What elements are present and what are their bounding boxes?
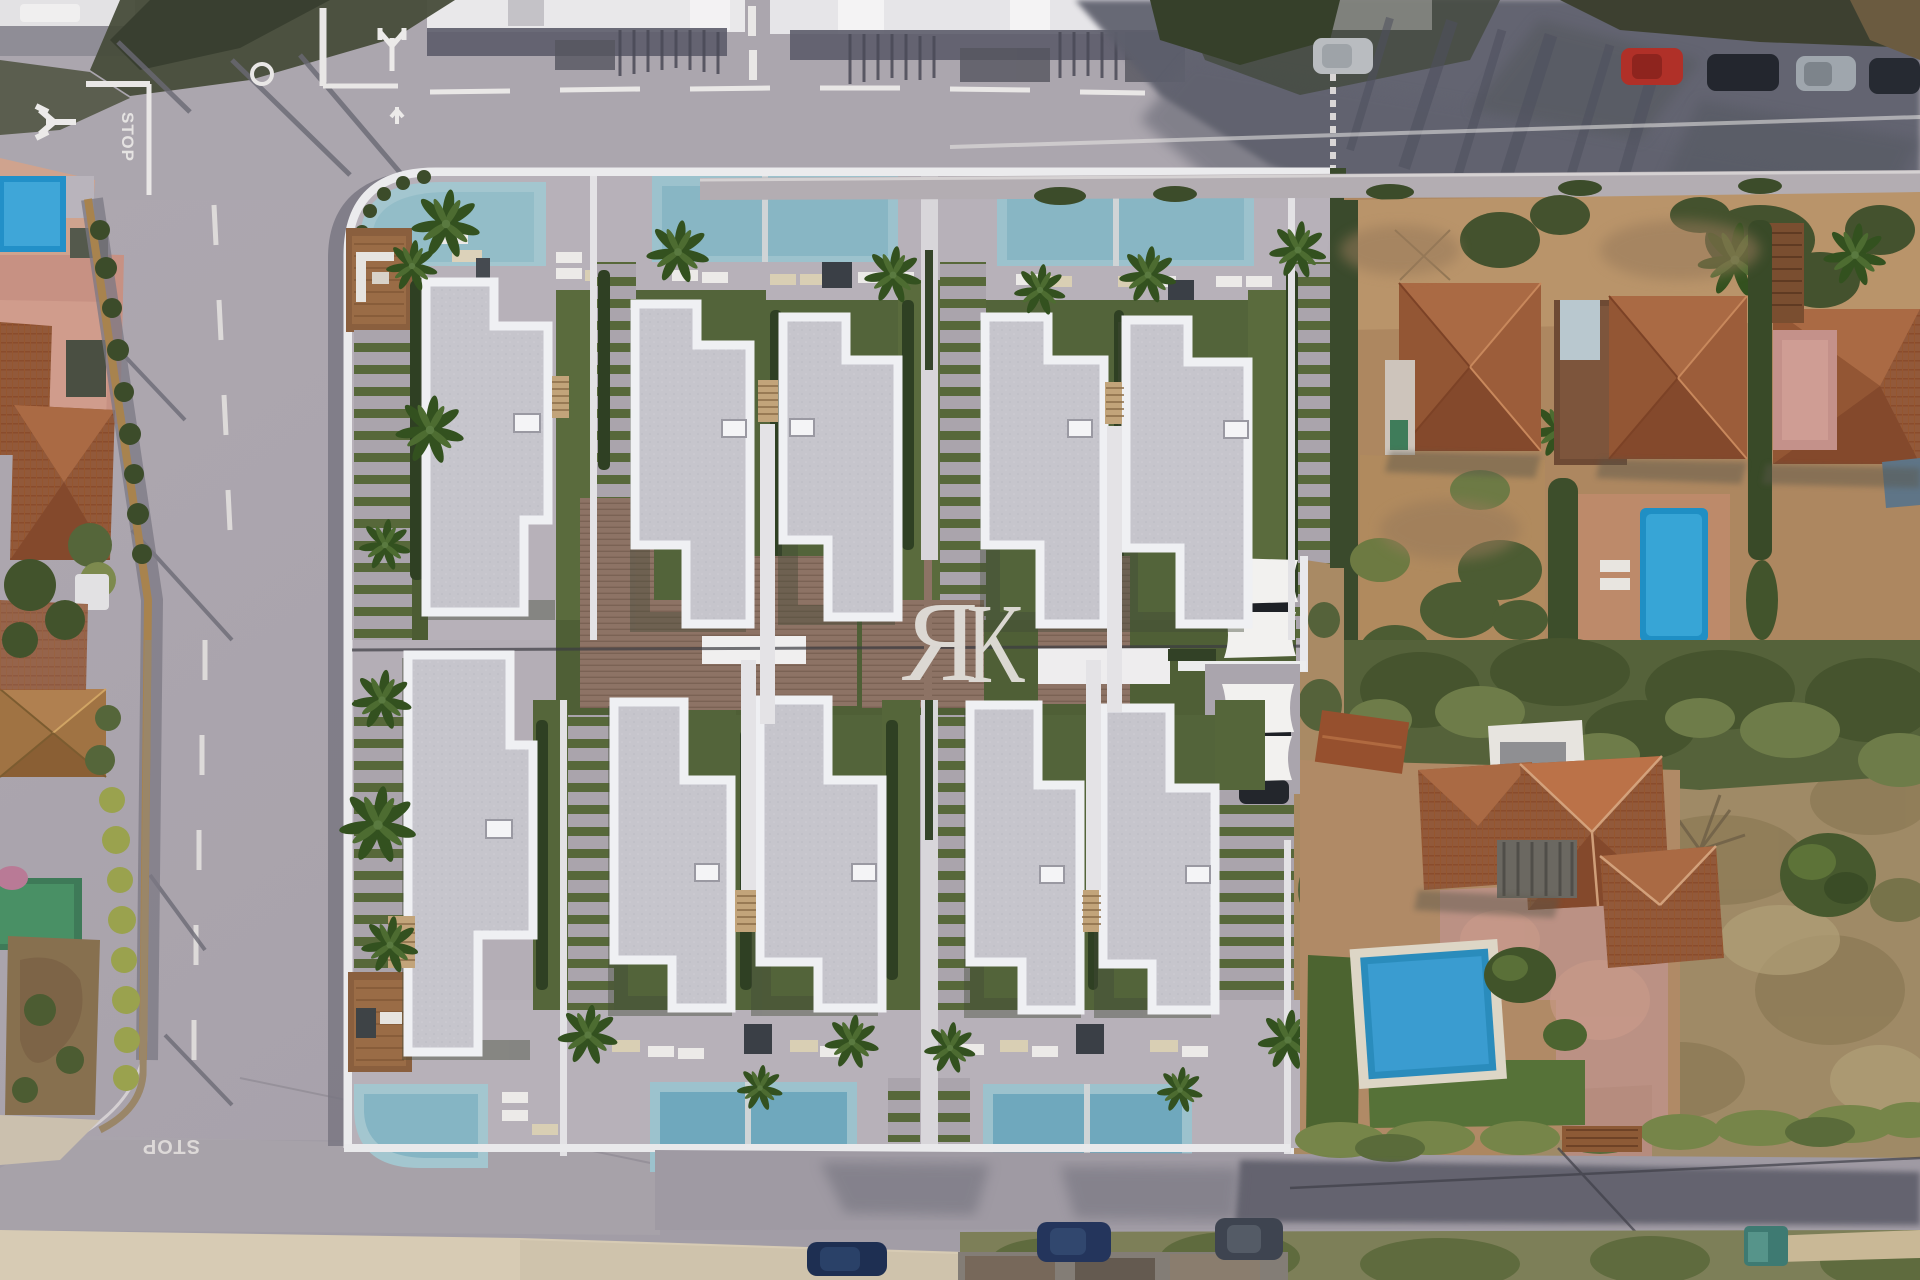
svg-text:STOP: STOP xyxy=(142,1135,200,1157)
svg-text:STOP: STOP xyxy=(118,112,137,162)
svg-text:K: K xyxy=(966,581,1025,707)
